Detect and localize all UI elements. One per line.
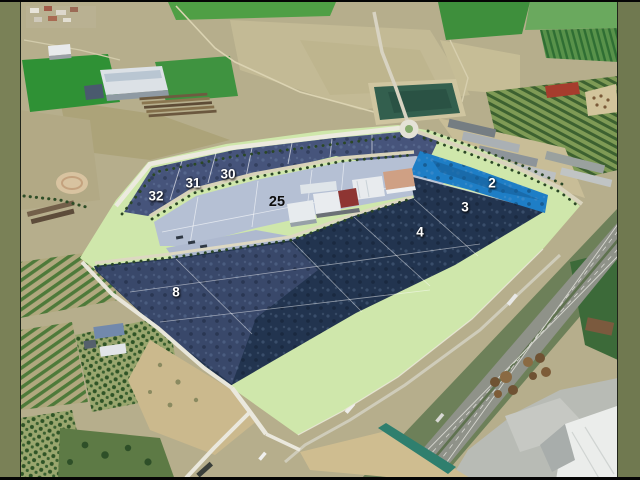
parcel-label-31: 31 xyxy=(185,176,200,190)
roundabout xyxy=(400,120,419,139)
parcel-label-3: 3 xyxy=(461,200,469,214)
parcel-label-2: 2 xyxy=(488,176,496,190)
aerial-photo xyxy=(0,0,640,480)
parcel-label-30: 30 xyxy=(220,167,235,181)
parcel-label-4: 4 xyxy=(416,225,424,239)
frame-right xyxy=(618,0,640,480)
screenshot-frame: 32 31 30 25 2 3 4 8 xyxy=(0,0,640,480)
frame-left xyxy=(0,0,20,480)
edge-top xyxy=(0,0,640,2)
parcel-label-25: 25 xyxy=(269,195,285,210)
dirt-track xyxy=(56,172,88,194)
parcel-label-8: 8 xyxy=(172,285,180,299)
village-top-left xyxy=(26,6,96,28)
parcel-label-32: 32 xyxy=(148,189,163,203)
